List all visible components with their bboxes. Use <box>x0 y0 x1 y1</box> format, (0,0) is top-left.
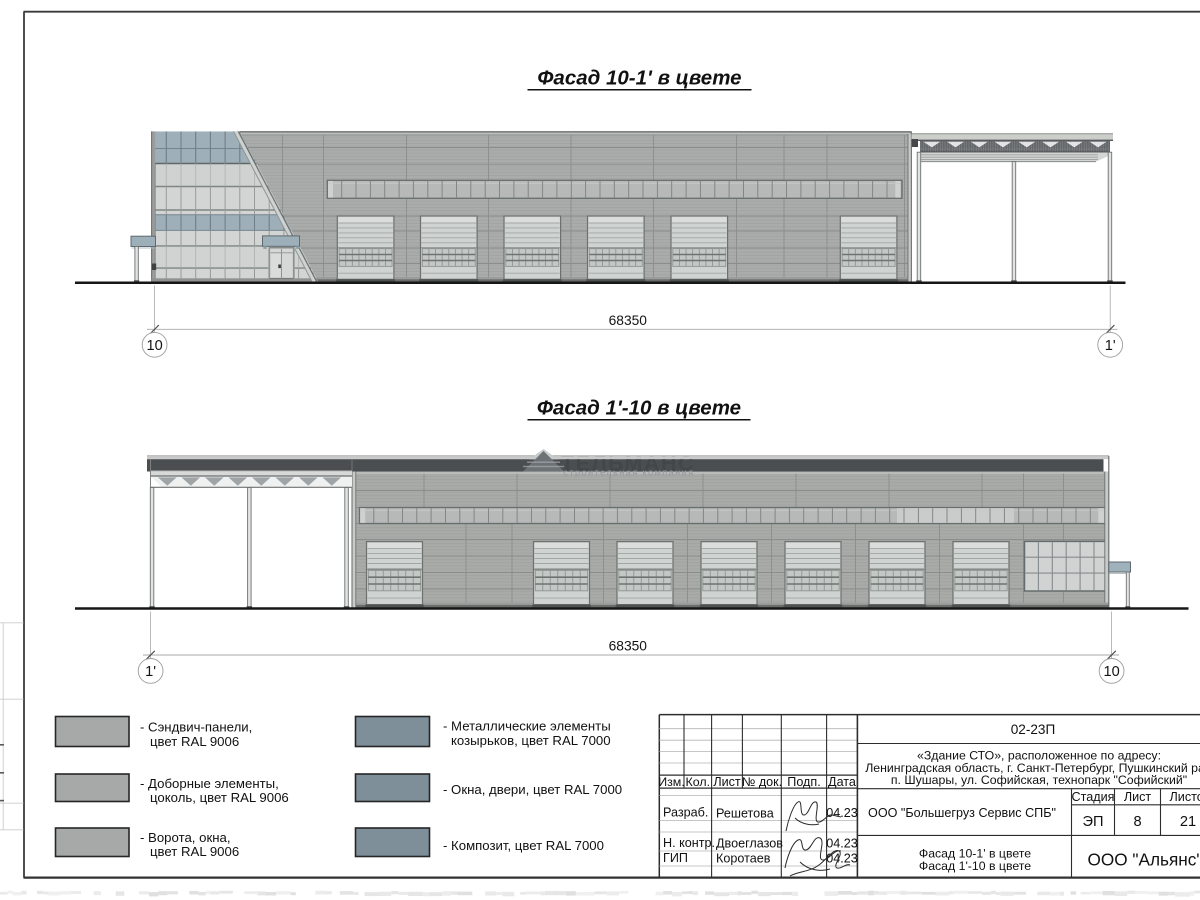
svg-text:Лист: Лист <box>1124 790 1152 804</box>
svg-text:Фасад 1'-10 в цвете: Фасад 1'-10 в цвете <box>919 859 1031 873</box>
svg-text:- Металлические элементы: - Металлические элементы <box>443 719 611 734</box>
svg-text:04.23: 04.23 <box>826 806 858 820</box>
svg-text:цвет RAL 9006: цвет RAL 9006 <box>150 844 239 859</box>
svg-text:цоколь, цвет RAL 9006: цоколь, цвет RAL 9006 <box>150 790 289 805</box>
svg-text:8: 8 <box>1133 814 1141 830</box>
svg-text:Лист: Лист <box>713 775 741 789</box>
svg-text:- Доборные элементы,: - Доборные элементы, <box>140 776 279 791</box>
svg-text:№ док.: № док. <box>742 775 782 789</box>
svg-text:ГИП: ГИП <box>663 851 688 865</box>
svg-text:68350: 68350 <box>609 639 648 654</box>
svg-text:68350: 68350 <box>609 313 648 328</box>
svg-text:Фасад 10-1' в цвете: Фасад 10-1' в цвете <box>537 67 741 90</box>
svg-text:Листов: Листов <box>1170 790 1200 804</box>
svg-text:Коротаев: Коротаев <box>716 852 771 866</box>
svg-text:- Сэндвич-панели,: - Сэндвич-панели, <box>140 720 252 735</box>
svg-text:Фасад 1'-10 в цвете: Фасад 1'-10 в цвете <box>537 397 741 420</box>
svg-text:цвет RAL 9006: цвет RAL 9006 <box>150 734 239 749</box>
svg-text:ЭП: ЭП <box>1083 814 1104 830</box>
svg-text:10: 10 <box>146 338 162 354</box>
svg-text:строительная компания: строительная компания <box>563 467 694 477</box>
svg-text:козырьков, цвет RAL 7000: козырьков, цвет RAL 7000 <box>451 733 611 748</box>
svg-text:21: 21 <box>1180 814 1196 830</box>
svg-text:- Ворота, окна,: - Ворота, окна, <box>140 830 231 845</box>
svg-text:Дата: Дата <box>828 775 856 789</box>
svg-text:Стадия: Стадия <box>1072 790 1115 804</box>
svg-text:1': 1' <box>145 664 156 680</box>
svg-text:02-23П: 02-23П <box>1011 722 1056 737</box>
svg-text:Изм.: Изм. <box>658 775 685 789</box>
svg-text:ООО "Альянс": ООО "Альянс" <box>1088 850 1200 870</box>
svg-text:Двоеглазов: Двоеглазов <box>716 837 783 851</box>
svg-text:- Окна, двери, цвет RAL 7000: - Окна, двери, цвет RAL 7000 <box>443 782 622 797</box>
svg-text:Кол.: Кол. <box>686 775 711 789</box>
svg-text:п. Шушары, ул. Софийская, техн: п. Шушары, ул. Софийская, технопарк "Соф… <box>891 773 1187 787</box>
svg-text:04.23: 04.23 <box>826 837 858 851</box>
svg-text:ООО "Большегруз Сервис СПБ": ООО "Большегруз Сервис СПБ" <box>868 806 1056 820</box>
svg-text:Решетова: Решетова <box>716 807 774 821</box>
svg-text:- Композит, цвет RAL 7000: - Композит, цвет RAL 7000 <box>443 838 604 853</box>
svg-text:10: 10 <box>1103 664 1119 680</box>
svg-text:Разраб.: Разраб. <box>663 806 708 820</box>
svg-text:Н. контр.: Н. контр. <box>663 836 715 850</box>
svg-text:1': 1' <box>1105 338 1116 354</box>
svg-text:Подп.: Подп. <box>787 775 820 789</box>
